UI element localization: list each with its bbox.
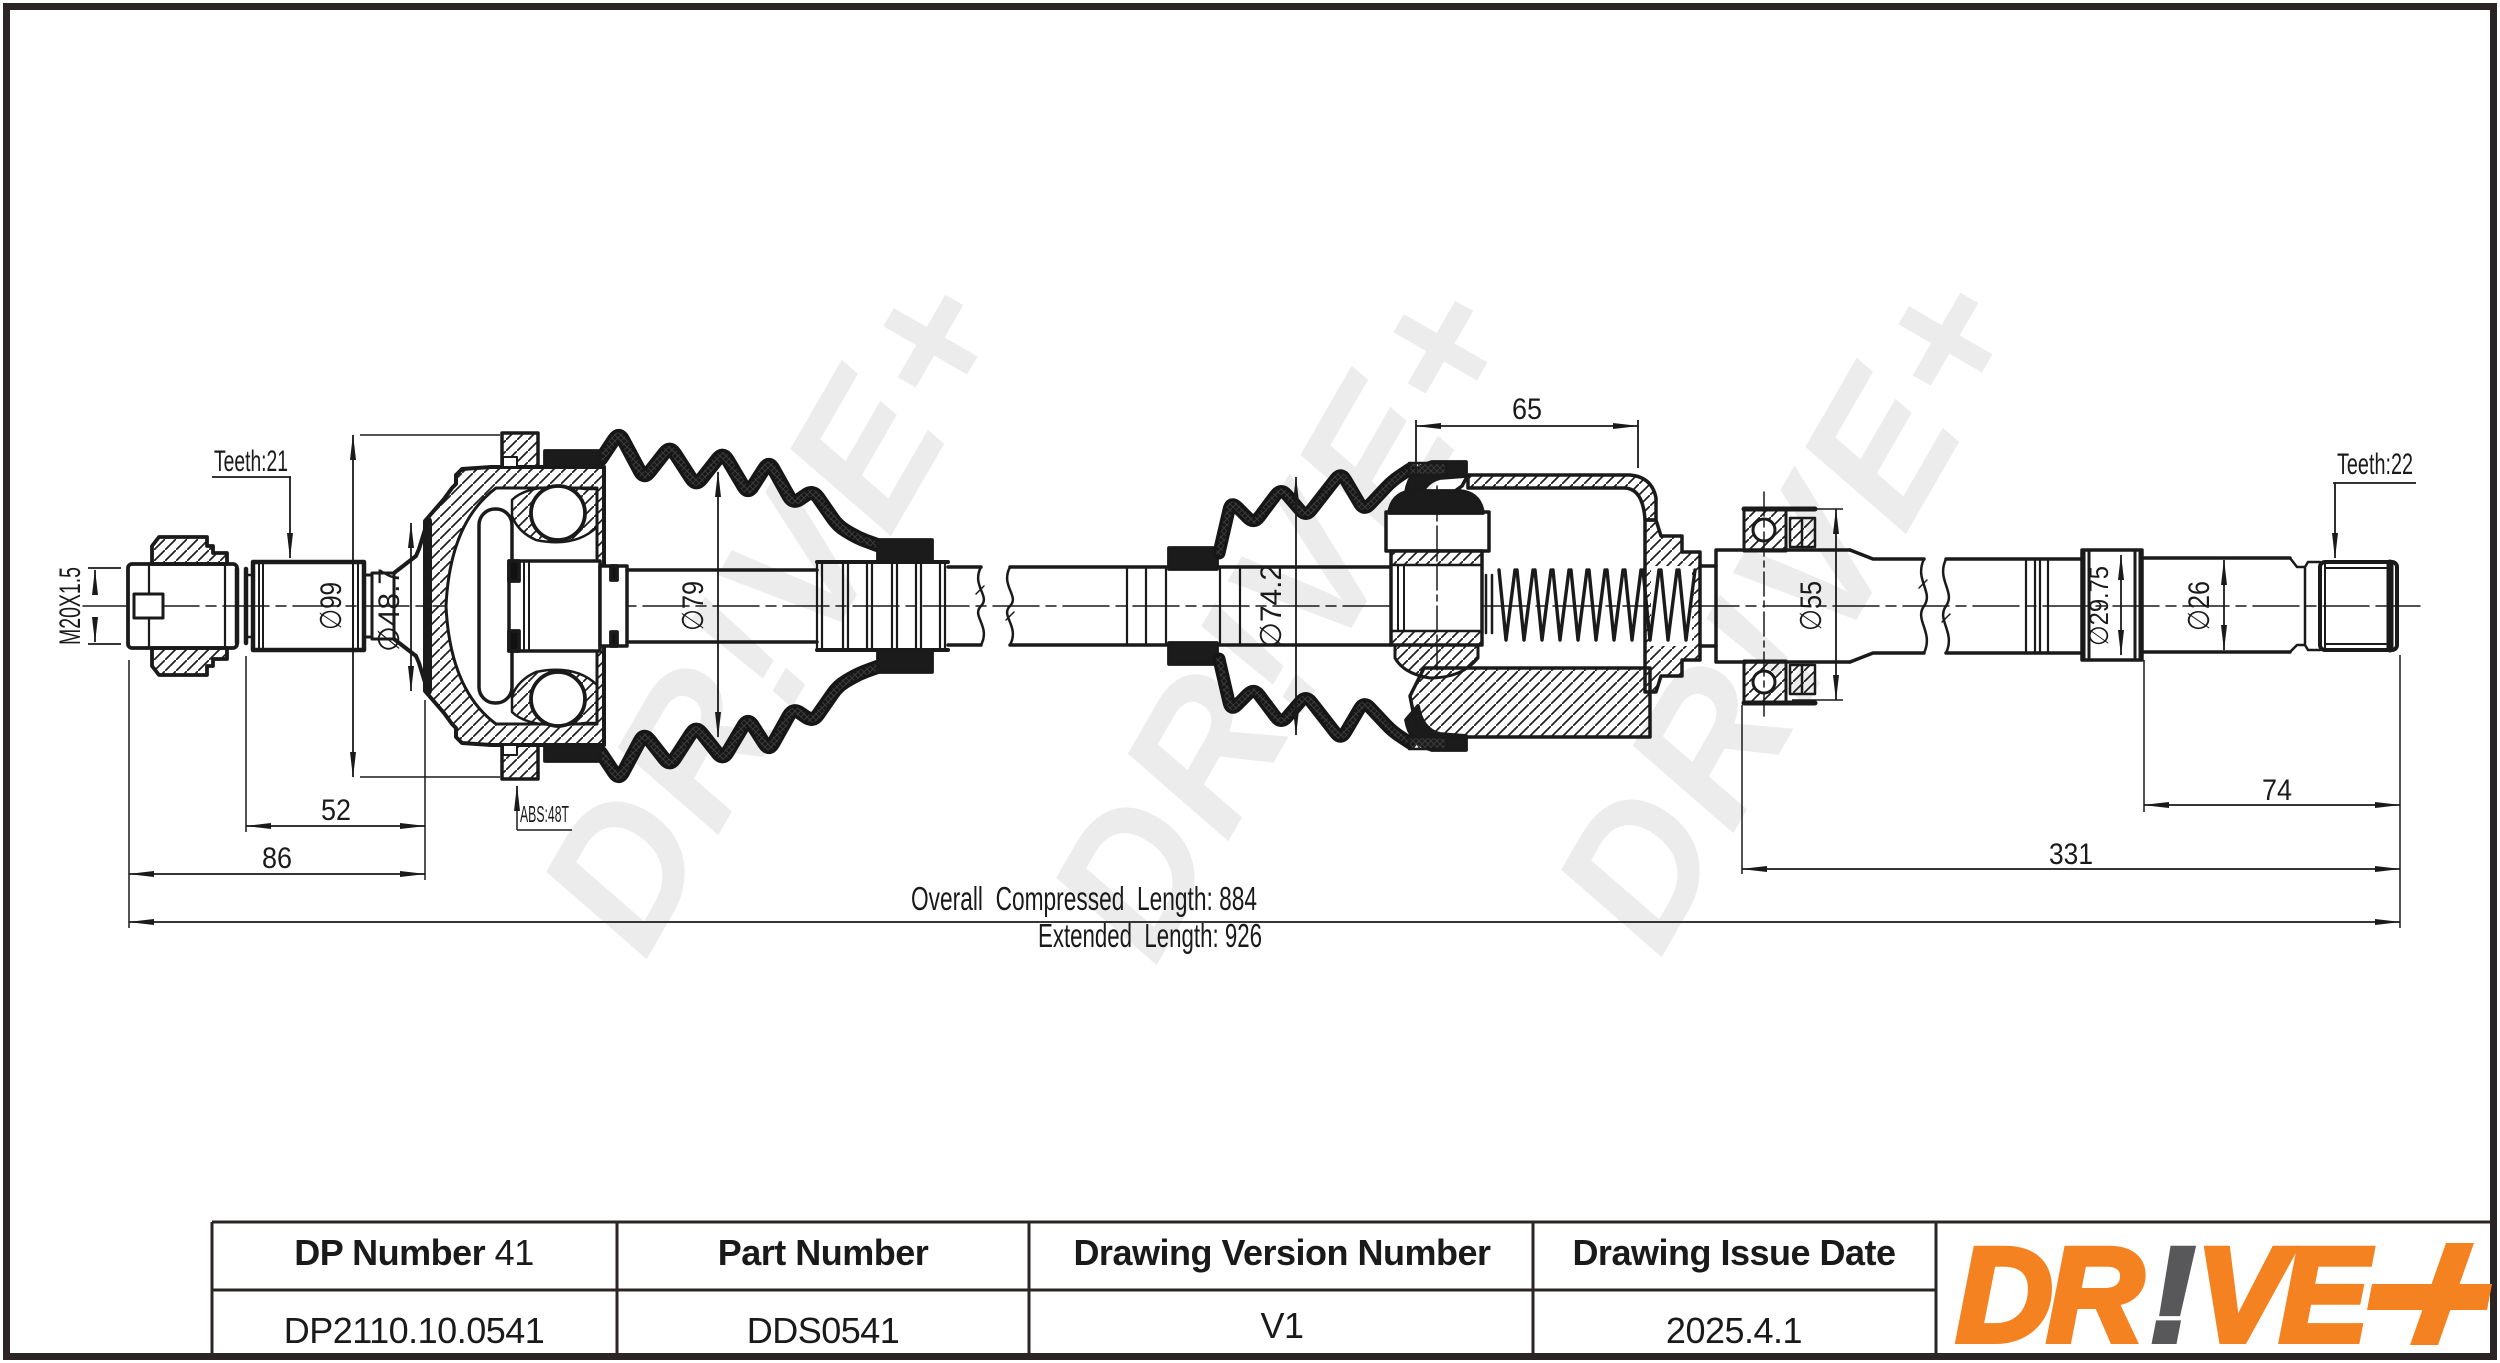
svg-text:Teeth:21: Teeth:21 (214, 445, 288, 478)
svg-text:∅29.75: ∅29.75 (2084, 566, 2114, 646)
svg-text:Teeth:22: Teeth:22 (2337, 448, 2413, 481)
svg-text:V1: V1 (1260, 1305, 1303, 1346)
svg-text:65: 65 (1512, 393, 1542, 426)
svg-text:Drawing Issue Date: Drawing Issue Date (1572, 1232, 1895, 1273)
svg-text:331: 331 (2049, 838, 2093, 871)
svg-text:∅55: ∅55 (1795, 581, 1828, 631)
svg-text:!: ! (2150, 1221, 2195, 1363)
svg-text:52: 52 (321, 794, 351, 827)
svg-text:86: 86 (262, 842, 292, 875)
svg-text:DR: DR (1956, 1221, 2143, 1363)
svg-text:Part Number: Part Number (718, 1232, 929, 1273)
svg-text:∅26: ∅26 (2183, 581, 2216, 631)
svg-text:∅48.7: ∅48.7 (373, 568, 406, 652)
svg-text:∅74.2: ∅74.2 (1255, 564, 1288, 648)
svg-text:∅79: ∅79 (677, 581, 710, 631)
svg-text:Extended Length: 926: Extended Length: 926 (1038, 917, 1262, 954)
svg-text:74: 74 (2262, 774, 2292, 807)
svg-text:DDS0541: DDS0541 (747, 1310, 900, 1351)
svg-text:DP2110.10.0541: DP2110.10.0541 (284, 1310, 545, 1351)
svg-text:DP Number 41: DP Number 41 (294, 1232, 533, 1273)
svg-text:Drawing Version Number: Drawing Version Number (1073, 1232, 1491, 1273)
svg-text:ABS:48T: ABS:48T (520, 801, 569, 827)
svg-text:2025.4.1: 2025.4.1 (1666, 1310, 1802, 1351)
svg-text:M20X1.5: M20X1.5 (54, 567, 87, 645)
svg-text:VE: VE (2196, 1221, 2372, 1363)
svg-text:∅99: ∅99 (315, 582, 348, 630)
svg-text:Overall Compressed Length: 8: Overall Compressed Length: 884 (911, 880, 1257, 917)
